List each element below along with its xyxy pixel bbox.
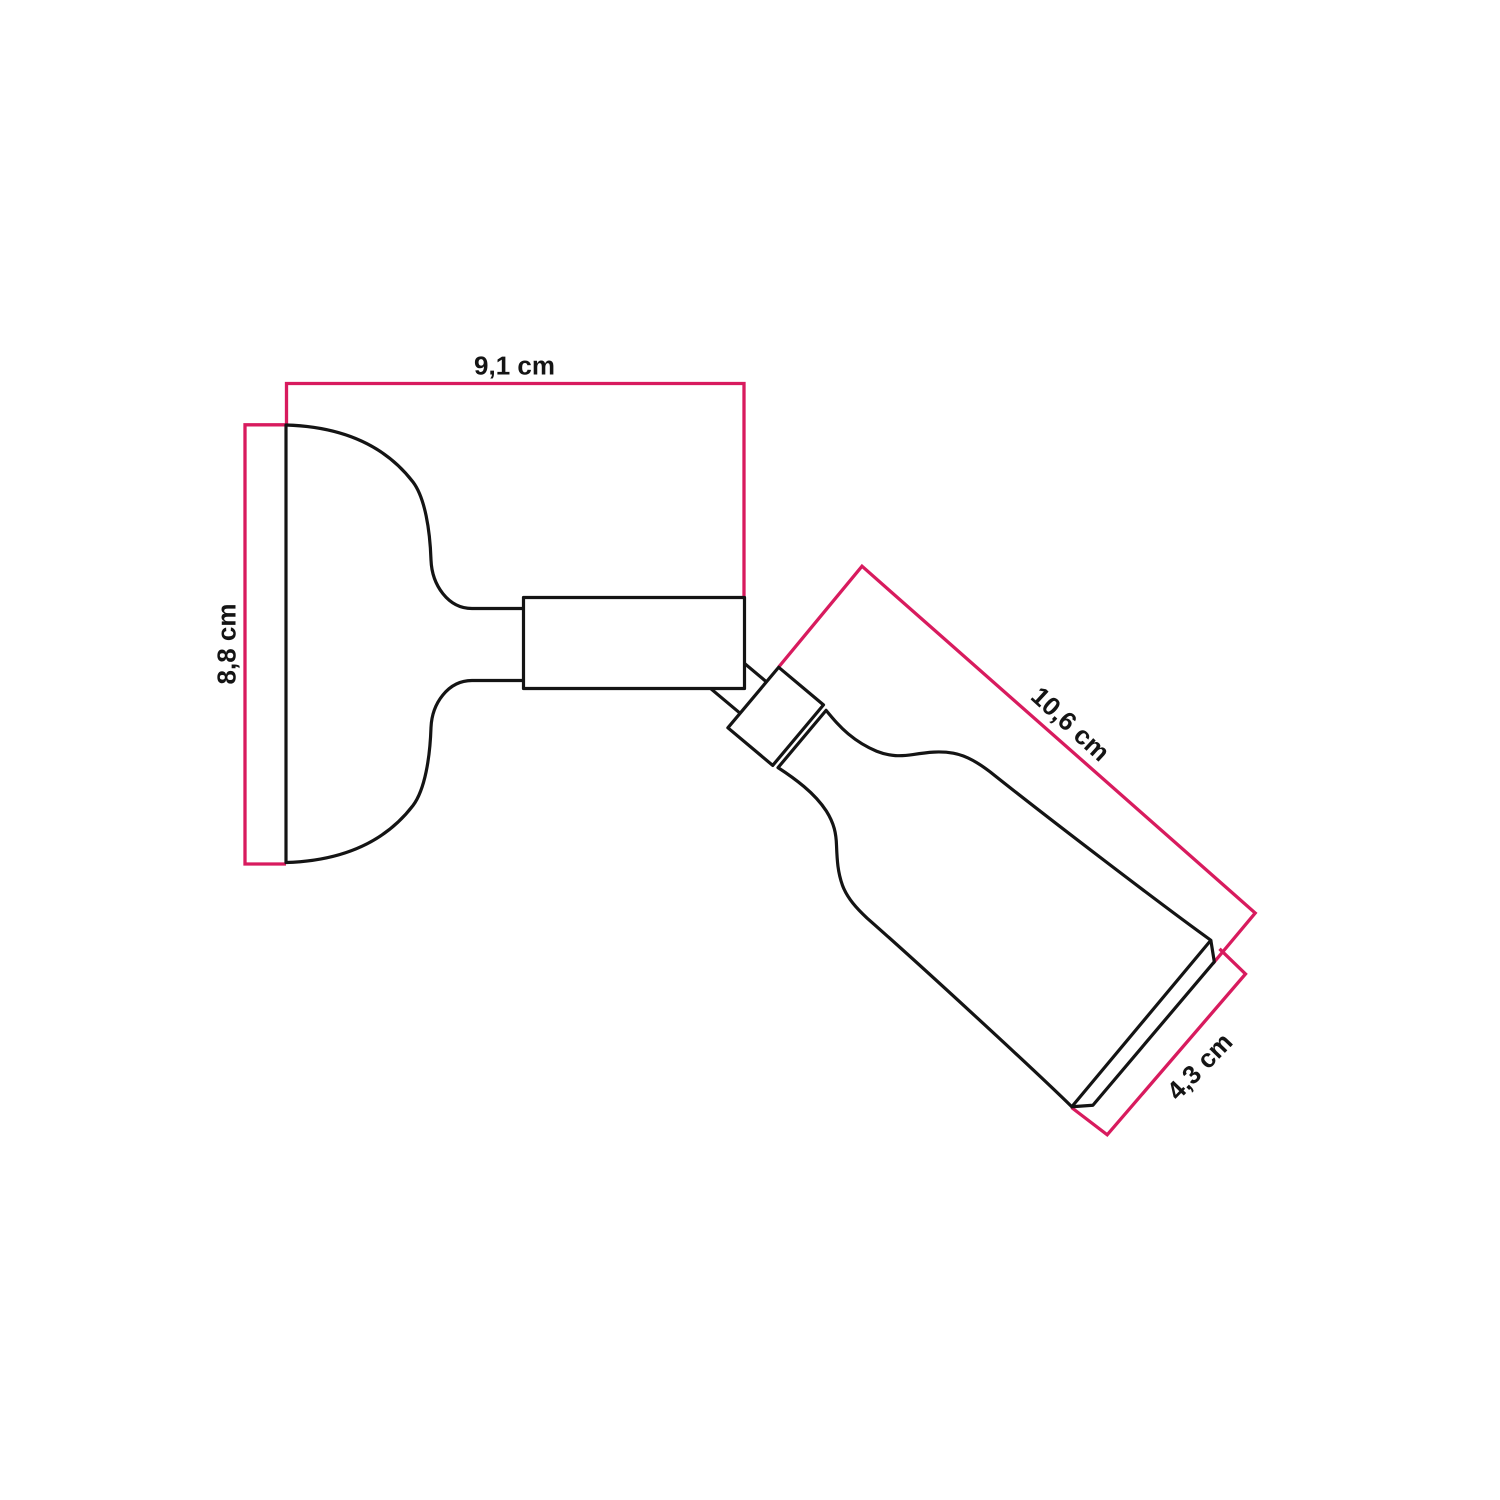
svg-text:9,1 cm: 9,1 cm <box>474 351 555 381</box>
svg-text:8,8 cm: 8,8 cm <box>212 604 242 685</box>
